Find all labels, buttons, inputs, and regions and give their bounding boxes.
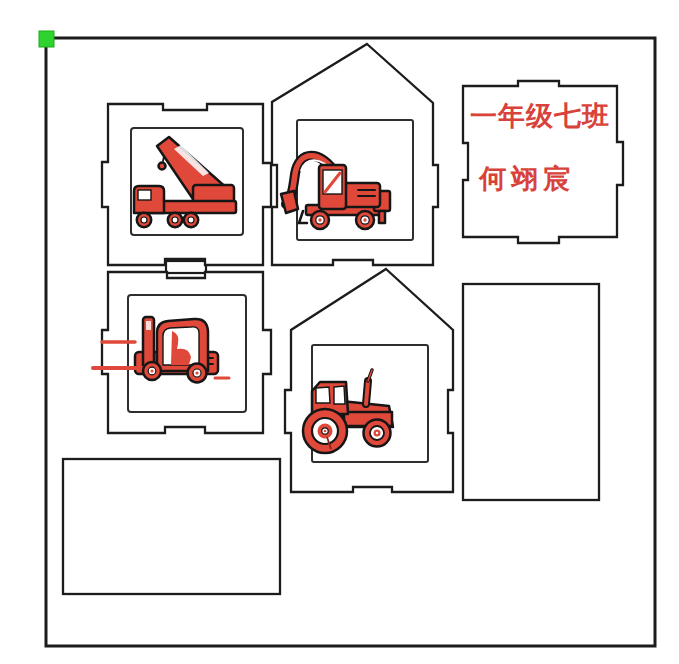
tractor-cab-window-front (316, 387, 330, 403)
tractor-exhaust (366, 381, 368, 404)
crane-hook (159, 163, 166, 170)
cutting-layout: 一年级七班 何翊宸 (0, 0, 679, 664)
joint-connector-tab[interactable] (166, 261, 206, 273)
name-plate-name-text: 何翊宸 (478, 164, 575, 194)
forklift-mast-highlight (146, 321, 151, 330)
tractor-rear-wheel (303, 409, 347, 453)
name-plate-panel[interactable]: 一年级七班 何翊宸 (463, 81, 623, 243)
blank-panel-bottom[interactable] (63, 459, 280, 594)
tractor-cab-window-rear (334, 386, 345, 404)
design-canvas: 一年级七班 何翊宸 (0, 0, 679, 664)
name-plate-class-text: 一年级七班 (470, 101, 610, 131)
blank-panel-right[interactable] (463, 284, 599, 500)
tractor-front-wheel (364, 420, 391, 447)
origin-marker[interactable] (39, 31, 54, 47)
crane-cab-window (138, 190, 151, 200)
excavator-rear-leg (379, 211, 385, 223)
